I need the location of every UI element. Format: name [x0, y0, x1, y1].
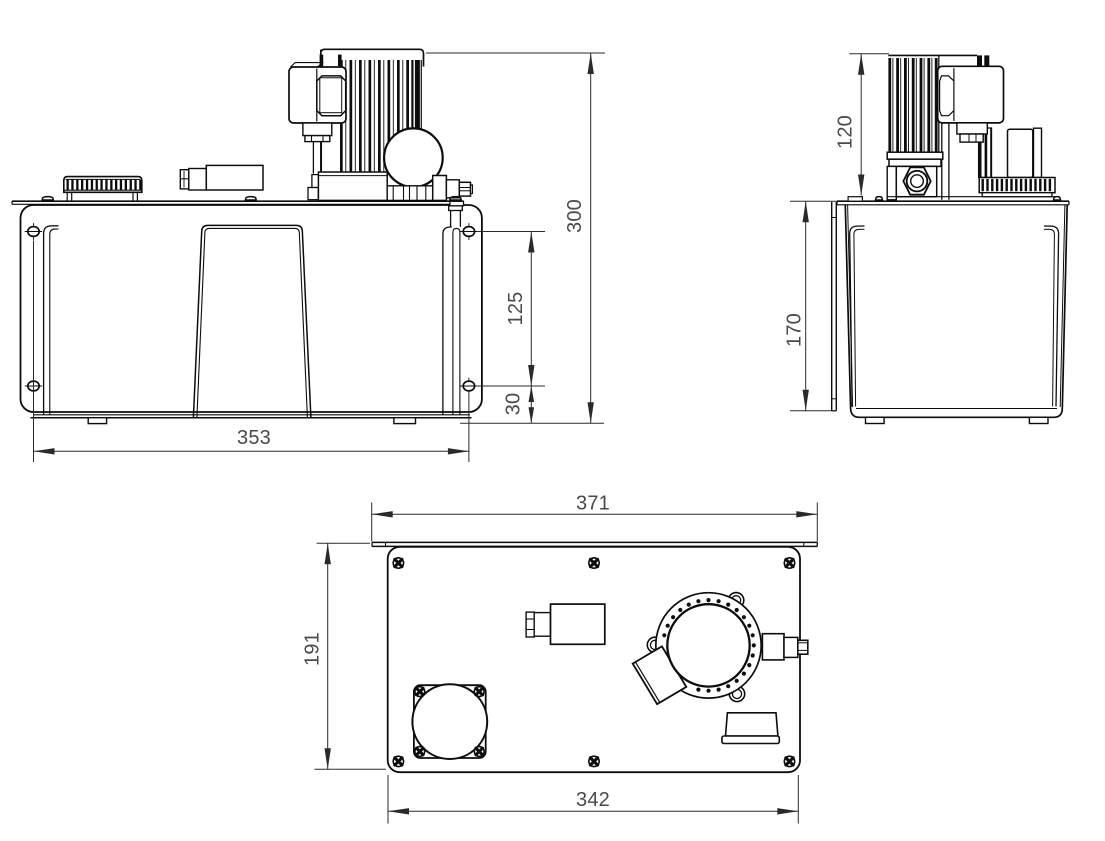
svg-text:125: 125	[505, 292, 527, 326]
svg-text:300: 300	[564, 199, 586, 233]
svg-text:30: 30	[503, 393, 525, 416]
svg-text:342: 342	[576, 789, 610, 811]
svg-text:353: 353	[237, 427, 271, 449]
svg-text:191: 191	[302, 632, 324, 666]
svg-text:371: 371	[576, 493, 610, 515]
svg-text:120: 120	[835, 115, 857, 149]
svg-text:170: 170	[784, 313, 806, 347]
